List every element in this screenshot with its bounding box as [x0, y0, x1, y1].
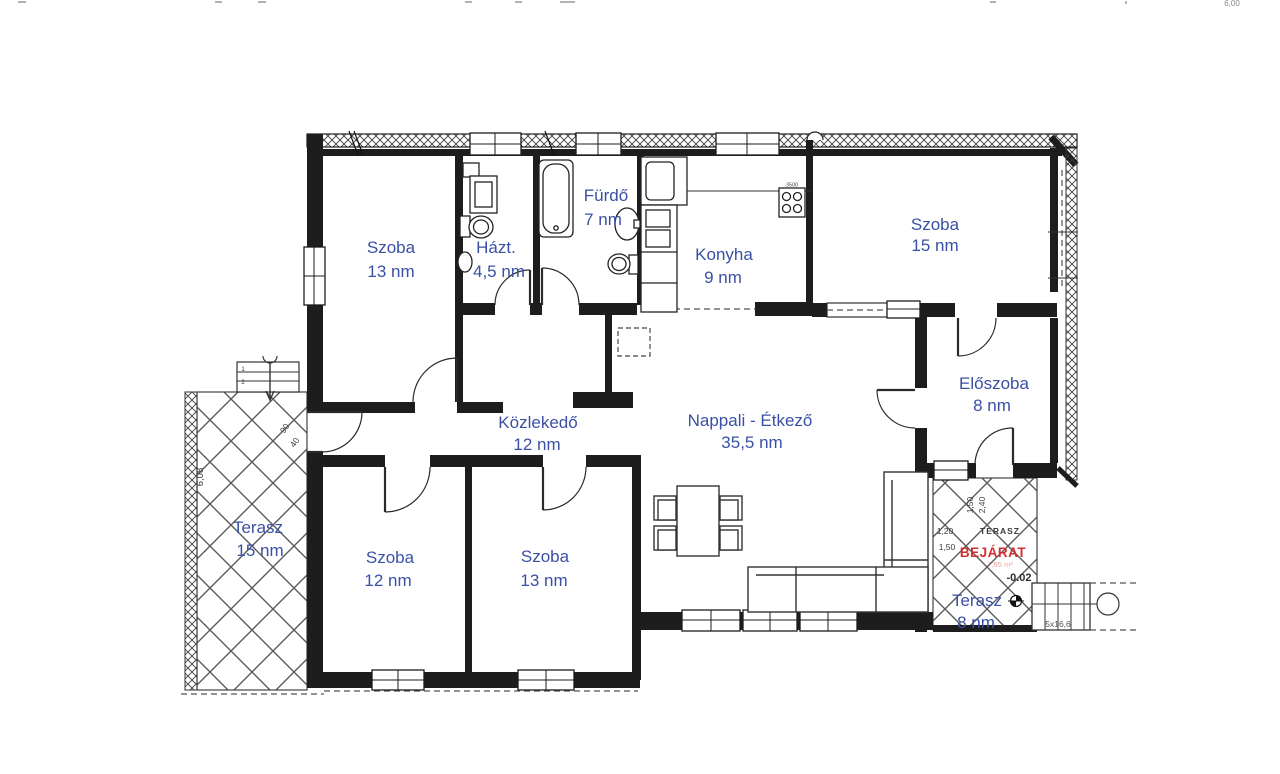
room-area: 12 nm	[364, 571, 411, 590]
room-area: 8 nm	[957, 613, 995, 632]
room-name: Fürdő	[584, 186, 628, 205]
room-label-eloszoba: Előszoba 8 nm	[959, 374, 1029, 415]
window-living-3	[800, 610, 857, 631]
dim-1-20: 1,20	[937, 526, 954, 536]
room-area: 13 nm	[367, 262, 414, 281]
door-terrace-left	[307, 412, 362, 452]
room-label-szoba-top-right: Szoba 15 nm	[911, 215, 960, 255]
window-top-3	[716, 133, 779, 155]
handrail-end-circle	[1097, 593, 1119, 615]
window-entry-hall	[934, 461, 968, 480]
stove: 3500	[779, 183, 805, 218]
door-bathroom	[542, 268, 579, 305]
utility-sink	[458, 252, 472, 272]
dim-1-50: 1,50	[939, 542, 956, 552]
room-name: Szoba	[367, 238, 416, 257]
corner-sofa	[748, 472, 928, 612]
room-label-hazt: Házt. 4,5 nm	[473, 238, 525, 281]
window-top-2	[576, 133, 621, 155]
room-name: Házt.	[476, 238, 516, 257]
window-top-1	[470, 133, 521, 155]
door-bedroom-top-left	[413, 358, 457, 402]
kitchen-cabinets	[641, 205, 677, 312]
dim-2-40-vertical: 2,40	[977, 496, 987, 513]
vent-arc-symbol	[807, 132, 823, 140]
room-area: 15 nm	[911, 236, 958, 255]
kitchen-sink	[641, 157, 687, 205]
room-area: 4,5 nm	[473, 262, 525, 281]
room-label-konyha: Konyha 9 nm	[695, 245, 753, 287]
stair-spec-label: 5x16,6	[1045, 619, 1071, 629]
room-label-szoba-bottom-left: Szoba 12 nm	[364, 548, 414, 590]
entrance-label: BEJÁRAT	[960, 545, 1027, 560]
room-name: Szoba	[366, 548, 415, 567]
stove-spec-label: 3500	[786, 183, 798, 189]
room-area: 35,5 nm	[721, 433, 782, 452]
window-living-2	[743, 610, 797, 631]
dim-1-50-vertical: 1,50	[965, 496, 975, 513]
garden-step-1: 1	[241, 366, 245, 373]
entrance-area-label: 7,85 m²	[987, 560, 1013, 569]
washing-machine	[463, 163, 497, 213]
room-name: Nappali - Étkező	[688, 411, 813, 430]
dim-6-08: 6,08	[195, 468, 206, 487]
door-bedroom-bottom-left	[385, 467, 430, 512]
room-label-nappali: Nappali - Étkező 35,5 nm	[688, 411, 813, 452]
room-name: Közlekedő	[498, 413, 577, 432]
door-bedroom-bottom-mid	[543, 467, 586, 510]
window-bedroom-left	[372, 670, 424, 690]
terrace-caption: TERASZ	[980, 526, 1020, 536]
garden-step-2: 2	[241, 379, 245, 386]
room-area: 7 nm	[584, 210, 622, 229]
room-name: Előszoba	[959, 374, 1029, 393]
floor-level-label: -0.02	[1006, 572, 1031, 584]
room-name: Szoba	[911, 215, 960, 234]
door-main-entrance	[975, 428, 1013, 465]
room-name: Terasz	[952, 591, 1002, 610]
window-living-1	[682, 610, 740, 631]
room-label-kozlekedo: Közlekedő 12 nm	[498, 413, 577, 454]
window-left-wall	[304, 247, 325, 305]
door-bedroom-top-right	[958, 318, 996, 356]
room-name: Szoba	[521, 547, 570, 566]
window-bedroom-tr-bottom	[887, 301, 920, 318]
window-bedroom-mid	[518, 670, 574, 690]
room-name: Terasz	[233, 518, 283, 537]
scan-artifacts: 6,00	[18, 0, 1240, 8]
floor-plan-page: 6,00 5x16,6 1 2	[0, 0, 1280, 774]
bathroom-toilet	[608, 254, 638, 274]
room-area: 15 nm	[236, 541, 283, 560]
vestibule-opening	[618, 328, 650, 356]
room-area: 8 nm	[973, 396, 1011, 415]
room-label-szoba-top-left: Szoba 13 nm	[367, 238, 416, 281]
room-area: 9 nm	[704, 268, 742, 287]
dining-table-set	[654, 486, 742, 556]
room-area: 13 nm	[520, 571, 567, 590]
utility-toilet	[460, 216, 493, 238]
room-label-furdo: Fürdő 7 nm	[584, 186, 628, 229]
door-living-to-entry-hall	[877, 390, 915, 428]
floor-plan-drawing: 6,00 5x16,6 1 2	[0, 0, 1280, 774]
room-label-szoba-bottom-mid: Szoba 13 nm	[520, 547, 569, 590]
exterior-stairs: 5x16,6	[1032, 583, 1140, 630]
bathtub	[539, 160, 573, 237]
room-area: 12 nm	[513, 435, 560, 454]
room-name: Konyha	[695, 245, 753, 264]
clipped-top-dimension: 6,00	[1224, 0, 1240, 8]
